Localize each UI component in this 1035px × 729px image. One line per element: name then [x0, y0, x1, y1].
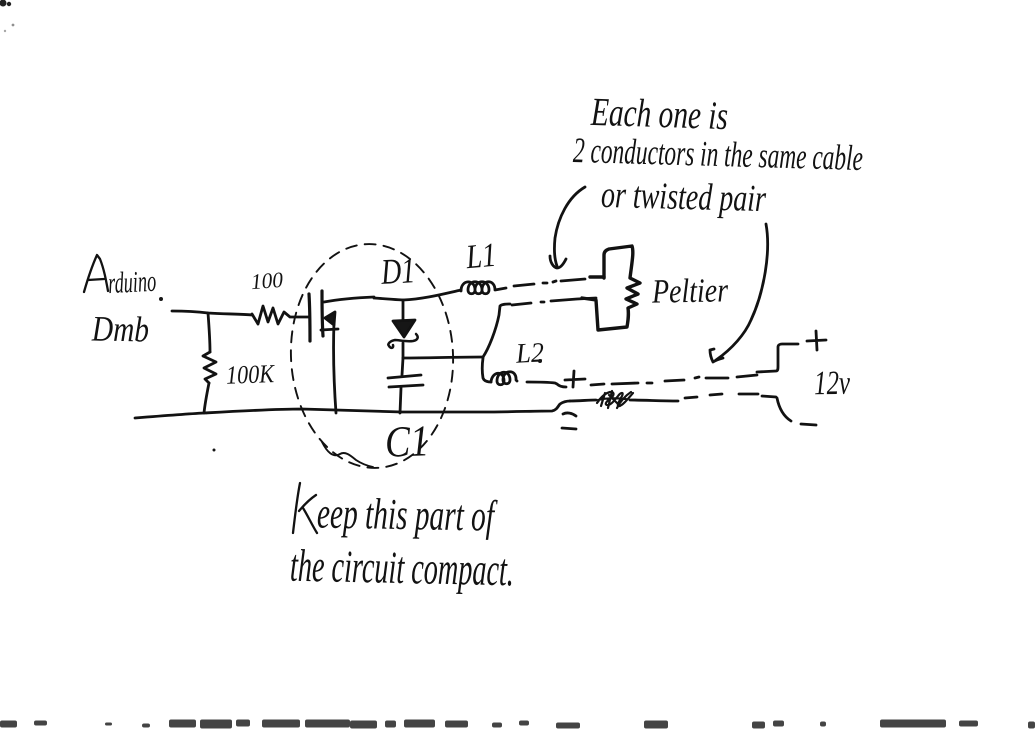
svg-text:L2: L2 — [514, 337, 545, 369]
svg-text:12v: 12v — [814, 365, 851, 403]
svg-text:L1: L1 — [464, 237, 498, 277]
svg-text:or twisted pair: or twisted pair — [600, 174, 766, 220]
svg-text:D1: D1 — [379, 250, 416, 292]
svg-text:Dmb: Dmb — [91, 309, 150, 350]
svg-text:2 conductors in the same cable: 2 conductors in the same cable — [573, 130, 864, 178]
svg-text:rduino: rduino — [107, 265, 157, 300]
svg-text:eep this part of: eep this part of — [317, 489, 499, 541]
svg-text:the circuit compact.: the circuit compact. — [290, 540, 515, 596]
svg-text:Peltier: Peltier — [651, 272, 729, 310]
svg-text:100K: 100K — [226, 359, 276, 390]
svg-text:100: 100 — [250, 267, 284, 294]
